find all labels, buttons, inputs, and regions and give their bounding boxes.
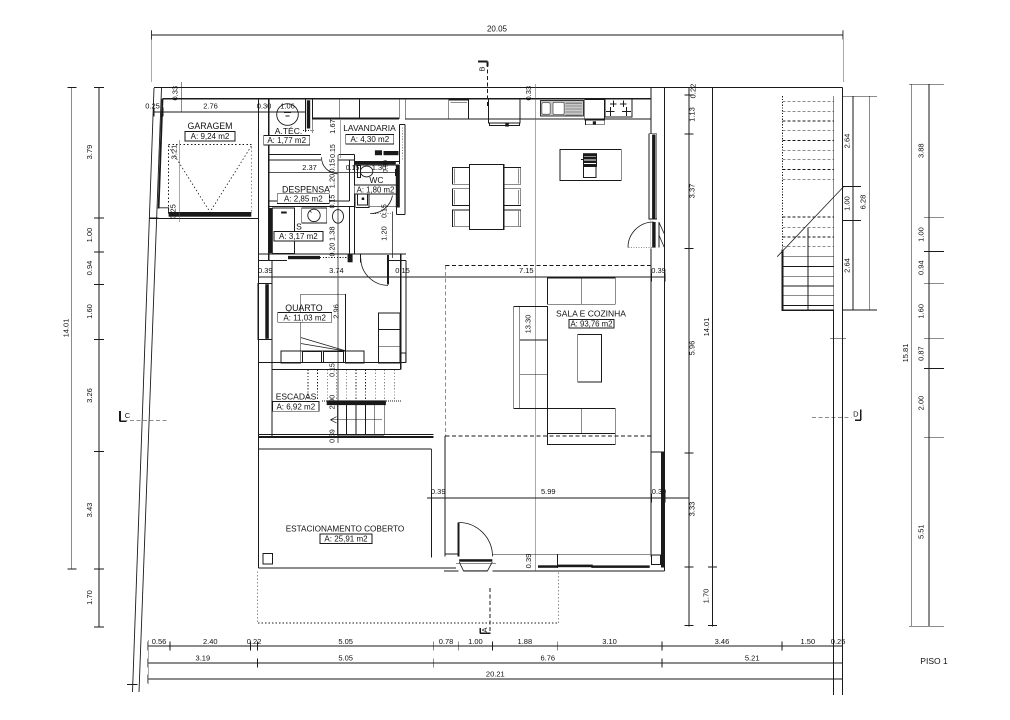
svg-text:A: 2,85 m2: A: 2,85 m2 — [284, 194, 323, 203]
svg-text:6.76: 6.76 — [540, 654, 555, 663]
svg-text:1.00: 1.00 — [85, 228, 94, 243]
svg-text:13.30: 13.30 — [524, 315, 533, 334]
svg-text:3.19: 3.19 — [196, 654, 211, 663]
svg-text:LAVANDARIA: LAVANDARIA — [343, 123, 396, 133]
svg-text:GARAGEM: GARAGEM — [188, 121, 233, 131]
svg-text:0.39: 0.39 — [431, 487, 446, 496]
svg-text:0.33: 0.33 — [171, 86, 180, 101]
svg-text:1.00: 1.00 — [917, 227, 926, 242]
svg-text:5.05: 5.05 — [338, 654, 353, 663]
svg-text:3.88: 3.88 — [917, 143, 926, 158]
svg-text:1.88: 1.88 — [518, 637, 533, 646]
svg-text:3.26: 3.26 — [85, 388, 94, 403]
svg-text:0.90: 0.90 — [383, 160, 390, 173]
svg-text:1.60: 1.60 — [917, 304, 926, 319]
svg-text:5.51: 5.51 — [917, 524, 926, 539]
svg-text:1.20: 1.20 — [327, 174, 336, 189]
svg-text:2.40: 2.40 — [203, 637, 218, 646]
svg-text:14.01: 14.01 — [702, 318, 711, 337]
svg-text:3.79: 3.79 — [85, 145, 94, 160]
svg-text:1.20: 1.20 — [380, 226, 389, 241]
svg-text:6.28: 6.28 — [859, 195, 868, 210]
svg-text:A: 25,91 m2: A: 25,91 m2 — [324, 535, 368, 544]
svg-text:1.70: 1.70 — [85, 590, 94, 605]
svg-text:0.15: 0.15 — [330, 144, 337, 158]
svg-text:1.13: 1.13 — [688, 107, 697, 122]
svg-text:5.96: 5.96 — [688, 341, 697, 356]
svg-text:7.15: 7.15 — [519, 266, 534, 275]
svg-text:0.39: 0.39 — [652, 487, 667, 496]
svg-text:A: 3,17 m2: A: 3,17 m2 — [279, 232, 318, 241]
svg-text:1.38: 1.38 — [327, 226, 336, 241]
svg-text:0.25: 0.25 — [145, 102, 160, 111]
svg-text:3.74: 3.74 — [329, 266, 344, 275]
svg-text:1.00: 1.00 — [468, 637, 483, 646]
svg-text:5.99: 5.99 — [541, 487, 556, 496]
svg-text:SALA E COZINHA: SALA E COZINHA — [556, 308, 626, 318]
svg-text:C: C — [125, 411, 131, 420]
svg-text:2.37: 2.37 — [302, 163, 317, 172]
svg-text:QUARTO: QUARTO — [285, 303, 322, 313]
svg-text:A.TÉC.: A.TÉC. — [275, 126, 302, 136]
svg-text:B: B — [478, 66, 487, 71]
svg-text:ESCADAS: ESCADAS — [276, 391, 317, 401]
svg-text:0.94: 0.94 — [917, 260, 926, 275]
svg-text:A: 11,03 m2: A: 11,03 m2 — [283, 313, 326, 322]
svg-text:2.76: 2.76 — [203, 102, 218, 111]
svg-text:0.15: 0.15 — [382, 204, 389, 218]
svg-text:PISO 1: PISO 1 — [920, 656, 948, 666]
svg-text:2.00: 2.00 — [917, 396, 926, 411]
svg-text:2.64: 2.64 — [842, 134, 851, 149]
svg-text:0.15: 0.15 — [329, 195, 336, 209]
svg-text:A: 9,24 m2: A: 9,24 m2 — [191, 132, 230, 141]
svg-text:ESTACIONAMENTO COBERTO: ESTACIONAMENTO COBERTO — [286, 525, 405, 534]
svg-text:0.39: 0.39 — [524, 554, 533, 569]
svg-text:0.15: 0.15 — [346, 165, 360, 172]
svg-text:0.22: 0.22 — [689, 84, 698, 99]
svg-text:0.39: 0.39 — [329, 429, 336, 443]
svg-text:0.94: 0.94 — [85, 261, 94, 276]
svg-text:A: 4,30 m2: A: 4,30 m2 — [350, 135, 389, 144]
svg-text:D: D — [853, 410, 859, 419]
svg-text:3.43: 3.43 — [85, 503, 94, 518]
svg-text:0.15: 0.15 — [395, 266, 410, 275]
svg-text:1.60: 1.60 — [85, 304, 94, 319]
svg-text:3.37: 3.37 — [688, 184, 697, 199]
svg-text:20.21: 20.21 — [486, 670, 505, 679]
svg-text:0.39: 0.39 — [651, 266, 666, 275]
svg-text:1.50: 1.50 — [801, 637, 816, 646]
svg-text:A: 6,92 m2: A: 6,92 m2 — [276, 402, 315, 411]
svg-text:0.25: 0.25 — [831, 637, 846, 646]
svg-text:A: 1,80 m2: A: 1,80 m2 — [357, 186, 395, 195]
svg-text:0.33: 0.33 — [524, 86, 533, 101]
svg-text:0.39: 0.39 — [258, 266, 273, 275]
svg-text:S: S — [296, 222, 302, 232]
svg-text:3.10: 3.10 — [602, 637, 617, 646]
svg-text:2.64: 2.64 — [842, 258, 851, 273]
svg-text:2.96: 2.96 — [332, 304, 341, 319]
svg-text:1.70: 1.70 — [702, 589, 711, 604]
svg-text:1.67: 1.67 — [328, 119, 337, 134]
svg-text:3.33: 3.33 — [688, 502, 697, 517]
svg-text:20.05: 20.05 — [487, 25, 508, 34]
svg-text:0.15: 0.15 — [329, 159, 336, 173]
svg-text:0.30: 0.30 — [257, 102, 272, 111]
svg-text:A: A — [480, 627, 489, 632]
svg-text:3.46: 3.46 — [715, 637, 730, 646]
svg-text:1.00: 1.00 — [842, 196, 851, 211]
svg-text:15.81: 15.81 — [901, 344, 910, 363]
svg-text:0.56: 0.56 — [152, 637, 167, 646]
svg-text:0.25: 0.25 — [169, 204, 178, 219]
svg-text:3.21: 3.21 — [170, 145, 179, 160]
svg-text:0.78: 0.78 — [439, 637, 454, 646]
svg-text:WC: WC — [369, 175, 383, 185]
svg-text:5.21: 5.21 — [745, 654, 760, 663]
svg-text:0.22: 0.22 — [247, 637, 262, 646]
svg-text:14.01: 14.01 — [61, 319, 70, 338]
svg-text:5.05: 5.05 — [338, 637, 353, 646]
svg-text:A: 1,77 m2: A: 1,77 m2 — [267, 136, 306, 145]
svg-text:1.06: 1.06 — [280, 102, 295, 111]
svg-text:A: 93,76 m2: A: 93,76 m2 — [570, 320, 612, 329]
svg-text:0.87: 0.87 — [917, 346, 926, 361]
svg-text:DESPENSA: DESPENSA — [282, 184, 330, 194]
